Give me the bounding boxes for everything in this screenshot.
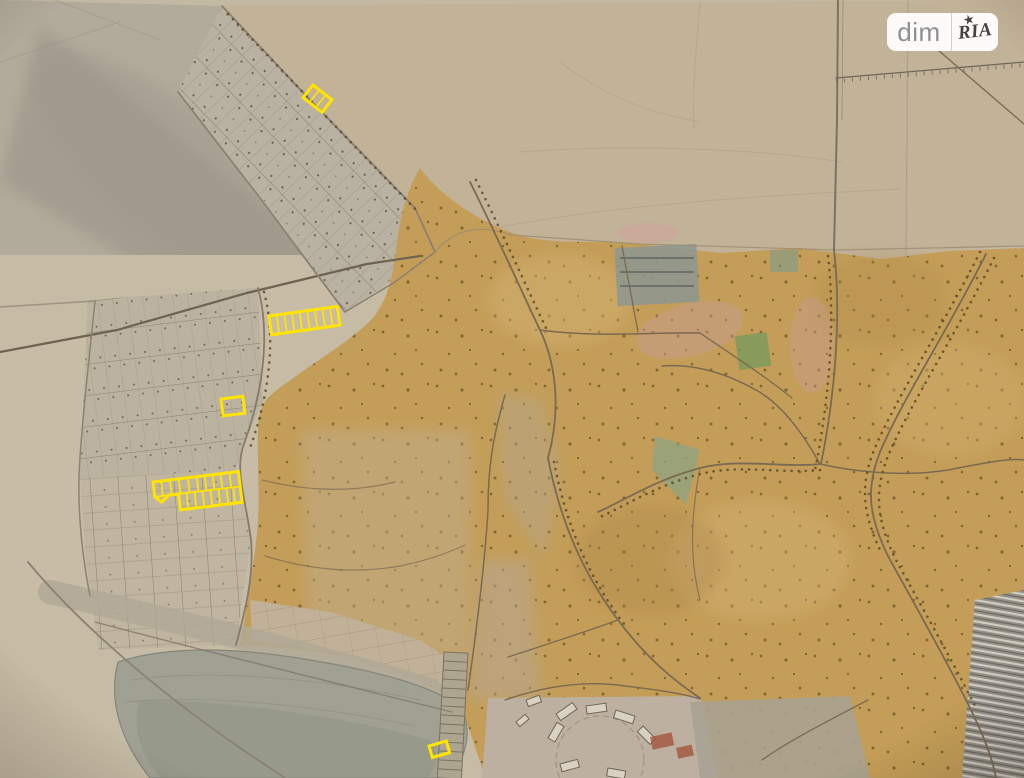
photo-vignette — [0, 0, 1024, 778]
watermark-ria-label: RIA — [957, 19, 994, 45]
watermark-ria-box: ★ RIA — [951, 13, 998, 51]
cadastral-map-drawing — [0, 0, 1024, 778]
watermark-dim-box: dim — [887, 13, 951, 51]
dimria-watermark: dim ★ RIA — [887, 13, 998, 51]
watermark-dim-label: dim — [897, 17, 940, 48]
map-photo: dim ★ RIA — [0, 0, 1024, 778]
